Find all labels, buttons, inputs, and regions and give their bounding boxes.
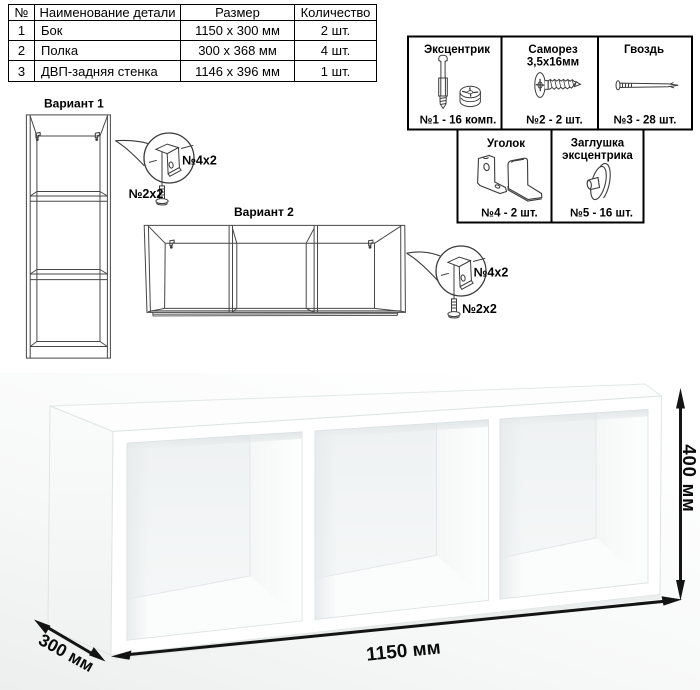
svg-text:№2 - 2 шт.: №2 - 2 шт. [526,115,582,127]
svg-text:Заглушка: Заглушка [571,138,625,150]
svg-text:№2х2: №2х2 [129,187,164,201]
svg-text:№4х2: №4х2 [182,154,217,168]
svg-text:Гвоздь: Гвоздь [624,44,664,56]
svg-text:Уголок: Уголок [487,138,525,150]
svg-text:Саморез: Саморез [528,44,578,56]
svg-text:№3 - 28 шт.: №3 - 28 шт. [614,115,677,127]
svg-text:№1 - 16 комп.: №1 - 16 комп. [420,115,497,127]
svg-text:№4 - 2 шт.: №4 - 2 шт. [481,208,537,220]
svg-text:Вариант 2: Вариант 2 [234,205,294,219]
svg-text:Эксцентрик: Эксцентрик [424,44,490,56]
svg-text:400 мм: 400 мм [679,444,700,512]
svg-text:№5 - 16 шт.: №5 - 16 шт. [570,208,633,220]
svg-text:3,5х16мм: 3,5х16мм [527,57,579,69]
svg-text:№2х2: №2х2 [462,302,497,316]
svg-text:эксцентрика: эксцентрика [562,150,633,162]
svg-text:Вариант 1: Вариант 1 [44,97,104,111]
svg-text:№4х2: №4х2 [474,266,509,280]
